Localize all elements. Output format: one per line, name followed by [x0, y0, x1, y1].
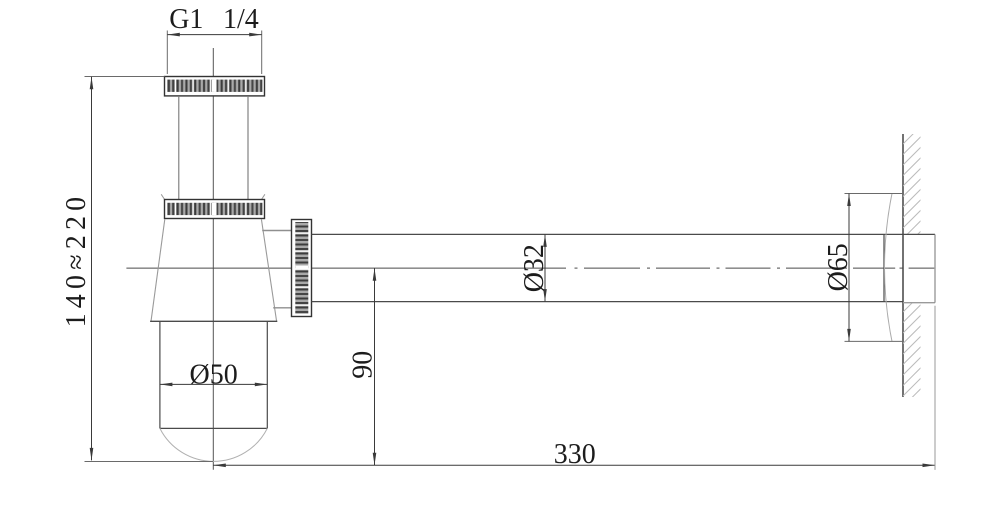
svg-text:Ø32: Ø32 [519, 244, 550, 292]
svg-text:Ø50: Ø50 [189, 360, 237, 391]
svg-text:Ø65: Ø65 [823, 243, 854, 291]
svg-text:90: 90 [348, 351, 379, 379]
svg-text:G1 1/4: G1 1/4 [169, 4, 259, 35]
svg-text:140≈220: 140≈220 [61, 192, 92, 328]
